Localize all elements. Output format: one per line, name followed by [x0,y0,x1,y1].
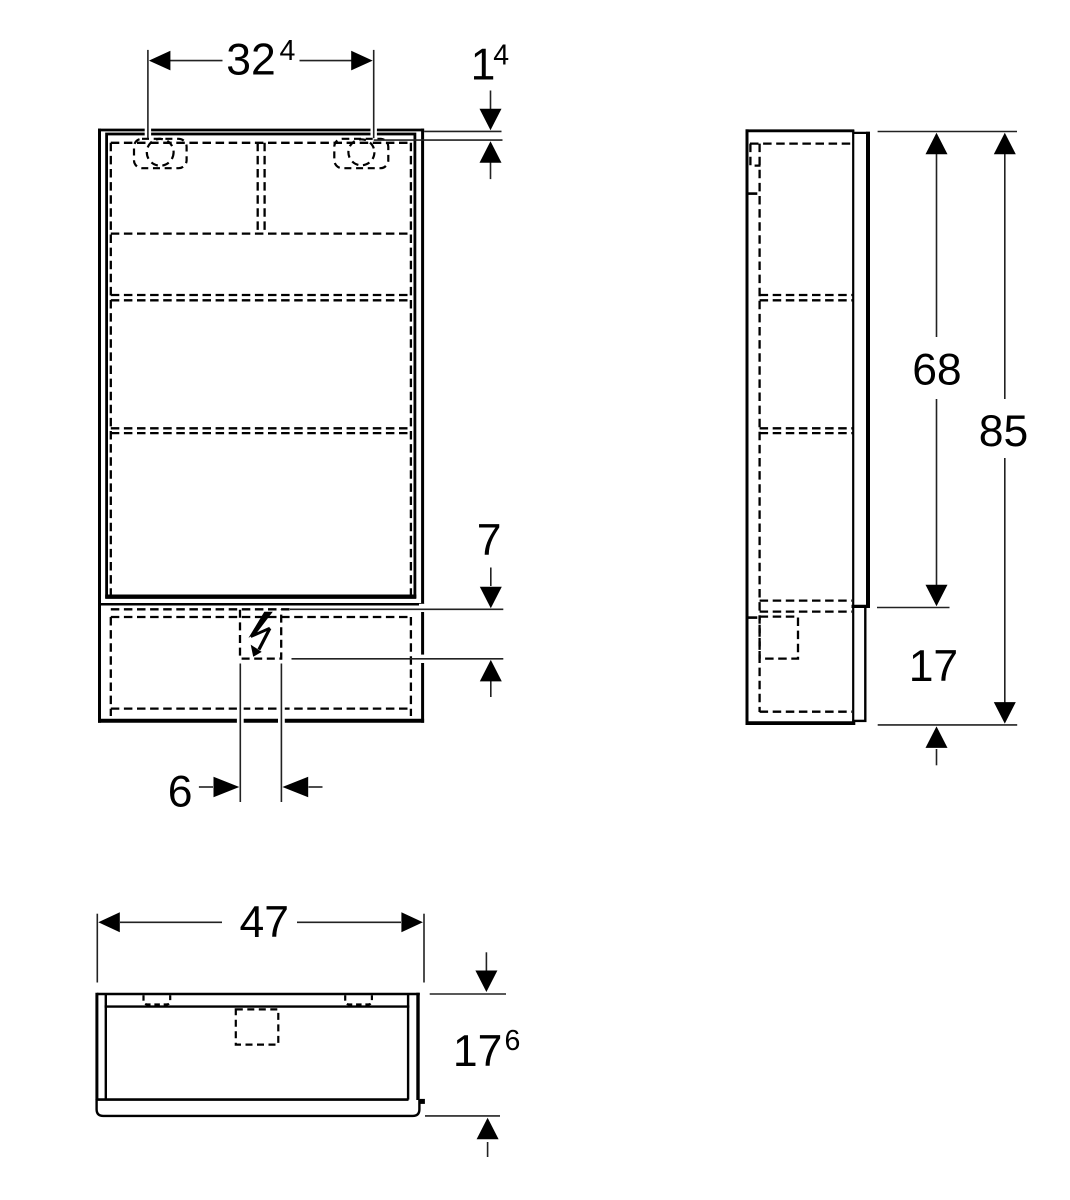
svg-text:6: 6 [168,768,193,817]
svg-text:47: 47 [240,898,290,947]
svg-text:17: 17 [453,1027,503,1076]
svg-text:17: 17 [909,642,959,691]
svg-text:68: 68 [912,345,962,394]
svg-text:6: 6 [505,1025,521,1057]
svg-text:32: 32 [226,35,275,84]
svg-text:85: 85 [979,407,1029,456]
svg-text:4: 4 [493,39,509,71]
svg-text:4: 4 [280,35,296,67]
svg-text:1: 1 [471,41,496,90]
svg-text:7: 7 [477,516,502,565]
